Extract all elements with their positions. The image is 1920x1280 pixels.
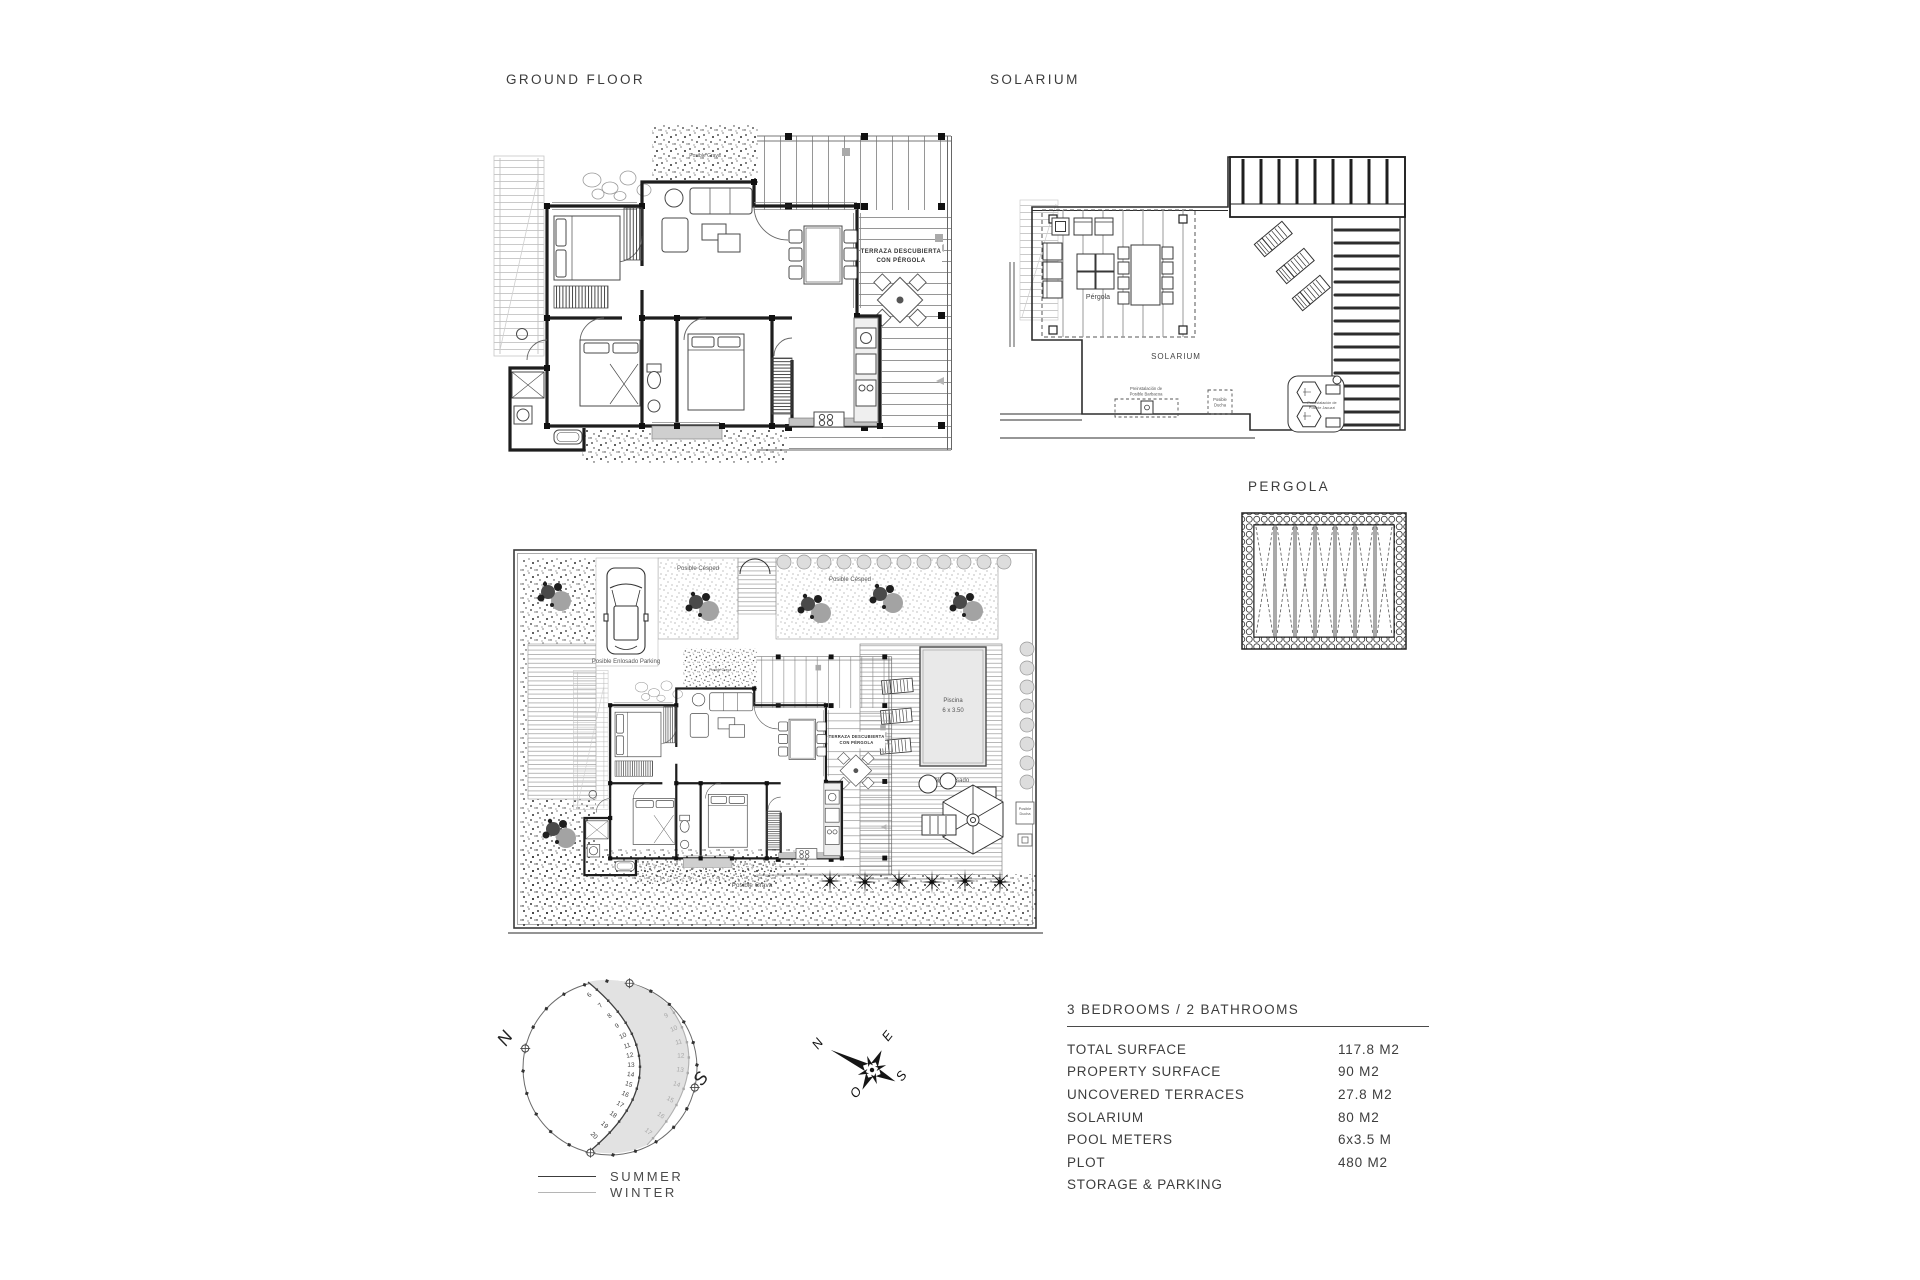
hour-tick [638, 1077, 640, 1079]
pool-label-line2: 6 x 3.50 [942, 708, 964, 714]
spec-table-title: 3 BEDROOMS / 2 BATHROOMS [1067, 1002, 1429, 1027]
hour-tick [687, 1072, 689, 1074]
floorplan-sheet: Posible Grava [0, 0, 1920, 1280]
spec-value: 6x3.5 M [1338, 1132, 1429, 1147]
summer-legend-label: SUMMER [610, 1169, 683, 1184]
lounge-furniture [1043, 218, 1173, 305]
hour-tick [686, 1041, 688, 1043]
spec-label: UNCOVERED TERRACES [1067, 1087, 1338, 1102]
jacuzzi-label-line1: Preinstalación de [1307, 401, 1336, 405]
hour-tick [609, 1131, 611, 1133]
spec-label: POOL METERS [1067, 1132, 1338, 1147]
winter-line-icon [538, 1192, 596, 1193]
sun-path-diagram: N S 678910111213141516171819209101112131… [495, 975, 735, 1185]
ground-floor-plan [492, 118, 967, 470]
hour-tick [617, 1011, 619, 1013]
hour-tick [639, 1066, 641, 1068]
entry-path [738, 558, 776, 614]
compass-east-label: E [879, 1028, 896, 1044]
sun-north-label: N [493, 1026, 517, 1049]
shower-area: Posible Ducha [1208, 390, 1232, 414]
hour-label-summer: 13 [627, 1062, 635, 1069]
site-gravel-label: Posible Grava [732, 882, 773, 889]
parking-label: Posible Enlosado Parking [592, 659, 660, 665]
table-row: SOLARIUM 80 M2 [1067, 1106, 1429, 1129]
house-footprint [573, 648, 891, 884]
site-plan: Posible Enlosado Parking Posible Césped … [508, 544, 1043, 936]
spec-label: TOTAL SURFACE [1067, 1042, 1338, 1057]
lawn-right-label: Posible Césped [829, 577, 871, 583]
pergola-detail [1238, 508, 1410, 654]
winter-legend-label: WINTER [610, 1185, 677, 1200]
shower-box: Posible Ducha [1016, 802, 1034, 846]
hour-tick [631, 1098, 633, 1100]
compass-west-label: O [847, 1084, 865, 1101]
pergola-area-label: Pérgola [1086, 294, 1110, 301]
bench [922, 815, 956, 835]
hour-tick [626, 1109, 628, 1111]
table-row: STORAGE & PARKING [1067, 1174, 1429, 1197]
pergola-heading: PERGOLA [1248, 479, 1330, 494]
hour-tick [631, 1033, 633, 1035]
table-row: UNCOVERED TERRACES 27.8 M2 [1067, 1083, 1429, 1106]
compass-south-label: S [893, 1068, 910, 1084]
hour-tick [624, 1022, 626, 1024]
hour-tick [618, 1120, 620, 1122]
hour-tick [636, 1088, 638, 1090]
hour-tick [596, 988, 598, 990]
spec-value: 80 M2 [1338, 1110, 1429, 1125]
parking: Posible Enlosado Parking [592, 558, 660, 666]
hour-tick [675, 1104, 677, 1106]
compass-rose: N E S O [800, 1018, 930, 1113]
ground-floor-heading: GROUND FLOOR [506, 72, 645, 87]
solarium-heading: SOLARIUM [990, 72, 1080, 87]
solarium-plan: Pérgola SOLARIUM Preinstalación de Posib… [1000, 142, 1435, 447]
hour-tick [652, 1137, 654, 1139]
pergola-grid [1230, 157, 1405, 217]
hour-tick [607, 999, 609, 1001]
lawn-left-label: Posible Césped [677, 566, 719, 572]
spec-value: 480 M2 [1338, 1155, 1429, 1170]
hour-tick [665, 1120, 667, 1122]
spec-label: PLOT [1067, 1155, 1338, 1170]
pool-label-line1: Piscina [943, 698, 963, 704]
hour-tick [597, 1142, 599, 1144]
barbecue-label-line1: Preinstalación de [1130, 386, 1163, 391]
site-shower-label-line2: Ducha [1020, 812, 1032, 816]
hour-label-summer: 14 [626, 1071, 635, 1079]
spec-label: STORAGE & PARKING [1067, 1177, 1338, 1192]
hour-tick [673, 1011, 675, 1013]
spec-value: 27.8 M2 [1338, 1087, 1429, 1102]
jacuzzi-label-line2: Posible Jacuzzi [1309, 406, 1335, 410]
spec-label: PROPERTY SURFACE [1067, 1064, 1338, 1079]
spec-value: 90 M2 [1338, 1064, 1429, 1079]
table-row: PLOT 480 M2 [1067, 1151, 1429, 1174]
spec-value: 117.8 M2 [1338, 1042, 1429, 1057]
spec-table: 3 BEDROOMS / 2 BATHROOMS TOTAL SURFACE 1… [1067, 1002, 1429, 1196]
solarium-area-label: SOLARIUM [1151, 352, 1201, 361]
hour-tick [635, 1044, 637, 1046]
hour-tick [688, 1056, 690, 1058]
barbecue: Preinstalación de Posible Barbacoa [1115, 386, 1178, 417]
hour-tick [682, 1088, 684, 1090]
spec-label: SOLARIUM [1067, 1110, 1338, 1125]
hour-tick [681, 1026, 683, 1028]
hour-tick [638, 1055, 640, 1057]
dining-table [1131, 245, 1160, 305]
summer-line-icon [538, 1176, 596, 1177]
shower-label-line1: Posible [1213, 397, 1227, 402]
barbecue-label-line2: Posible Barbacoa [1130, 391, 1163, 396]
table-row: PROPERTY SURFACE 90 M2 [1067, 1061, 1429, 1084]
jacuzzi: Preinstalación de Posible Jacuzzi [1288, 376, 1344, 432]
sun-legend: SUMMER WINTER [538, 1168, 683, 1200]
hour-label-winter: 12 [677, 1053, 685, 1060]
compass-north-label: N [809, 1035, 827, 1052]
shower-label-line2: Ducha [1214, 403, 1227, 408]
table-row: POOL METERS 6x3.5 M [1067, 1128, 1429, 1151]
car-icon [604, 568, 648, 654]
site-shower-label-line1: Posible [1019, 807, 1031, 811]
table-row: TOTAL SURFACE 117.8 M2 [1067, 1038, 1429, 1061]
pool: Piscina 6 x 3.50 [920, 647, 986, 766]
